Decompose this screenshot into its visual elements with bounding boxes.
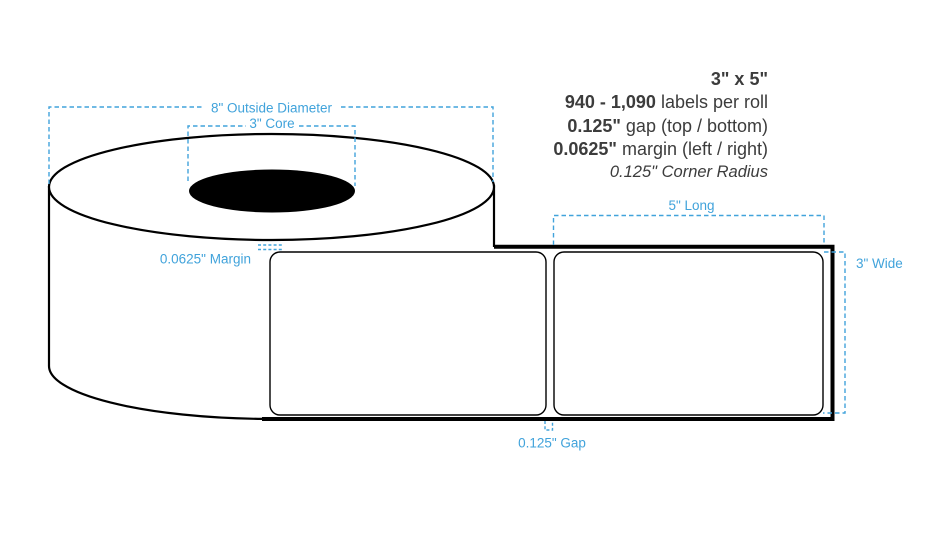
spec-corner-radius: 0.125" Corner Radius: [553, 161, 768, 184]
gap-dimension: 0.125" Gap: [518, 421, 586, 451]
wide-dimension: 3" Wide: [823, 252, 903, 413]
long-label: 5" Long: [668, 198, 714, 213]
gap-bracket: [545, 421, 553, 430]
margin-label: 0.0625" Margin: [160, 252, 251, 267]
spec-size: 3" x 5": [553, 68, 768, 91]
margin-dimension: 0.0625" Margin: [160, 245, 284, 267]
label-rect-1: [270, 252, 546, 415]
gap-label: 0.125" Gap: [518, 436, 586, 451]
spec-margin-value: 0.0625": [553, 139, 617, 159]
spec-gap-label: gap (top / bottom): [621, 116, 768, 136]
spec-summary: 3" x 5" 940 - 1,090 labels per roll 0.12…: [553, 68, 768, 184]
roll-core-hole: [189, 170, 355, 213]
spec-margin: 0.0625" margin (left / right): [553, 138, 768, 161]
label-roll-spec-diagram: 8" Outside Diameter 3" Core 0.0625" Marg…: [0, 0, 949, 534]
outside-diameter-label: 8" Outside Diameter: [211, 101, 333, 116]
spec-labels-per-roll: 940 - 1,090 labels per roll: [553, 91, 768, 114]
spec-gap-value: 0.125": [567, 116, 621, 136]
spec-margin-label: margin (left / right): [617, 139, 768, 159]
long-bracket: [554, 216, 825, 246]
core-label: 3" Core: [249, 116, 294, 131]
long-dimension: 5" Long: [554, 198, 825, 245]
spec-count-value: 940 - 1,090: [565, 92, 656, 112]
spec-gap: 0.125" gap (top / bottom): [553, 115, 768, 138]
wide-label: 3" Wide: [856, 256, 903, 271]
label-rect-2: [554, 252, 823, 415]
spec-corner-radius-value: 0.125" Corner Radius: [610, 163, 768, 181]
spec-count-label: labels per roll: [656, 92, 768, 112]
label-roll-drawing: 8" Outside Diameter 3" Core 0.0625" Marg…: [0, 0, 949, 534]
spec-size-value: 3" x 5": [711, 69, 768, 89]
